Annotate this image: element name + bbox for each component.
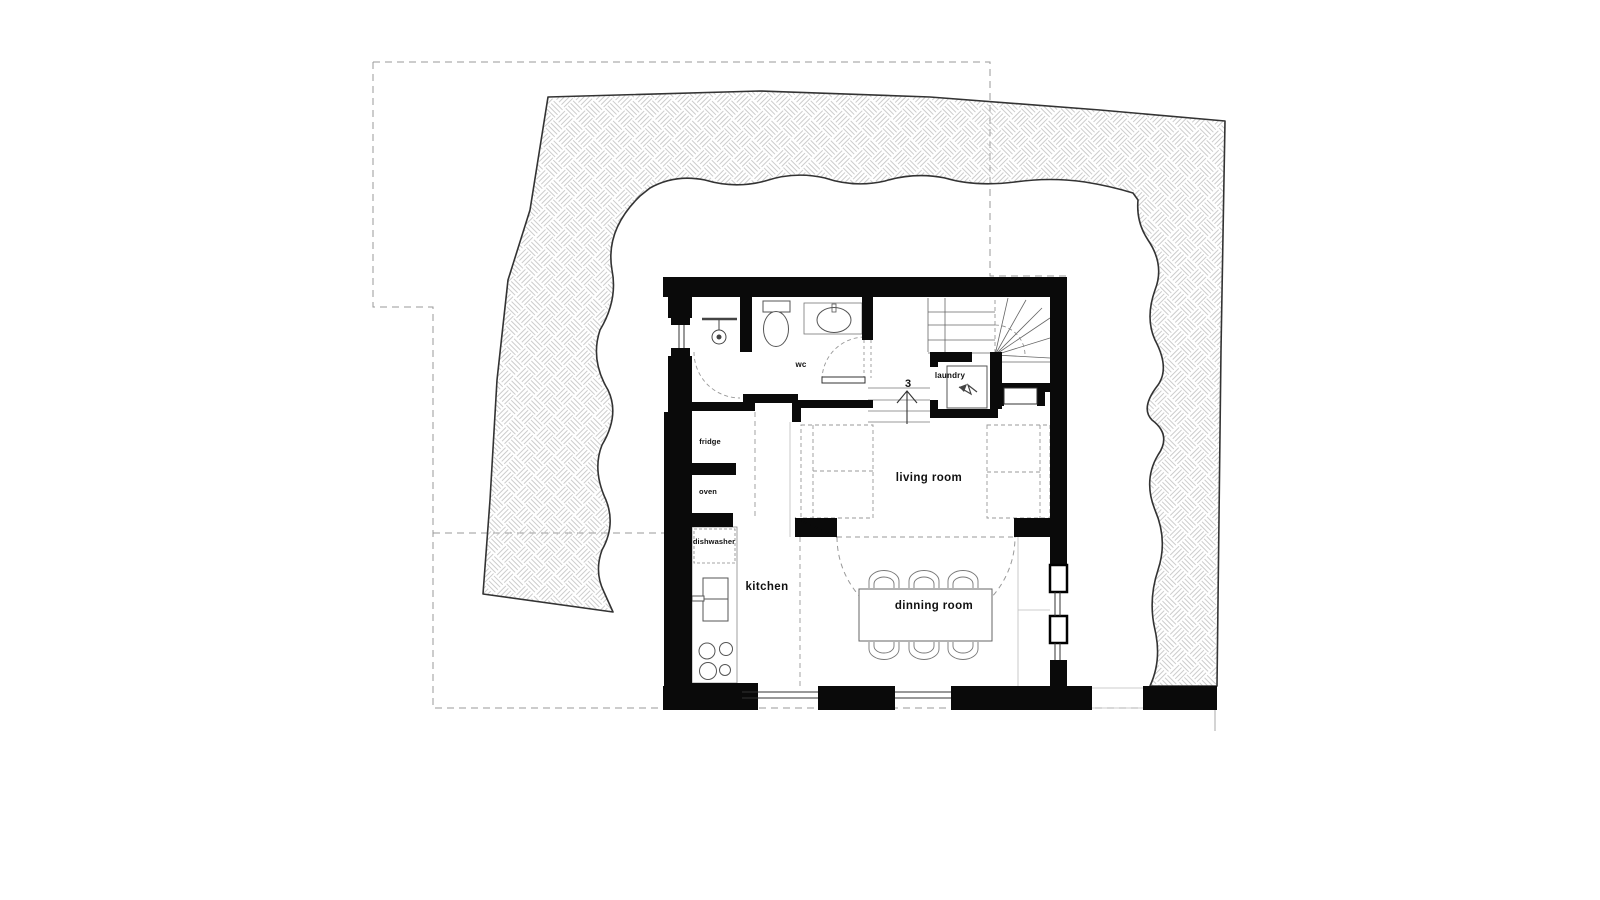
shower-door-swing-arc <box>694 352 740 398</box>
washbasin-fixture <box>804 303 862 334</box>
floor-plan-page: wc laundry fridge oven dishwasher kitche… <box>0 0 1600 900</box>
wc-door <box>822 337 871 383</box>
shower-fixture <box>702 319 737 344</box>
hall-steps <box>868 388 930 422</box>
kitchen-sink <box>692 578 728 621</box>
label-laundry: laundry <box>935 371 966 380</box>
floor-guide-lines <box>790 422 1143 708</box>
sofa-left <box>801 425 873 518</box>
dining-table <box>859 589 992 641</box>
label-kitchen: kitchen <box>745 581 788 593</box>
label-fridge: fridge <box>699 437 720 446</box>
stair-treads <box>928 298 995 353</box>
stair-winders <box>995 298 1050 362</box>
stair-niche <box>1004 388 1037 404</box>
walls <box>663 277 1217 710</box>
label-dishwasher: dishwasher <box>693 537 735 546</box>
sofa-right <box>987 425 1050 518</box>
label-wc: wc <box>794 360 806 369</box>
label-stair-number: 3 <box>905 378 911 390</box>
stair-direction-arrow <box>897 391 917 424</box>
toilet-fixture <box>763 301 790 347</box>
label-oven: oven <box>699 487 717 496</box>
floor-plan-drawing: wc laundry fridge oven dishwasher kitche… <box>0 0 1600 900</box>
terrain-hatch-band <box>483 91 1225 686</box>
cooktop <box>699 643 733 680</box>
label-dining-room: dinning room <box>895 600 973 612</box>
label-living-room: living room <box>896 472 962 484</box>
